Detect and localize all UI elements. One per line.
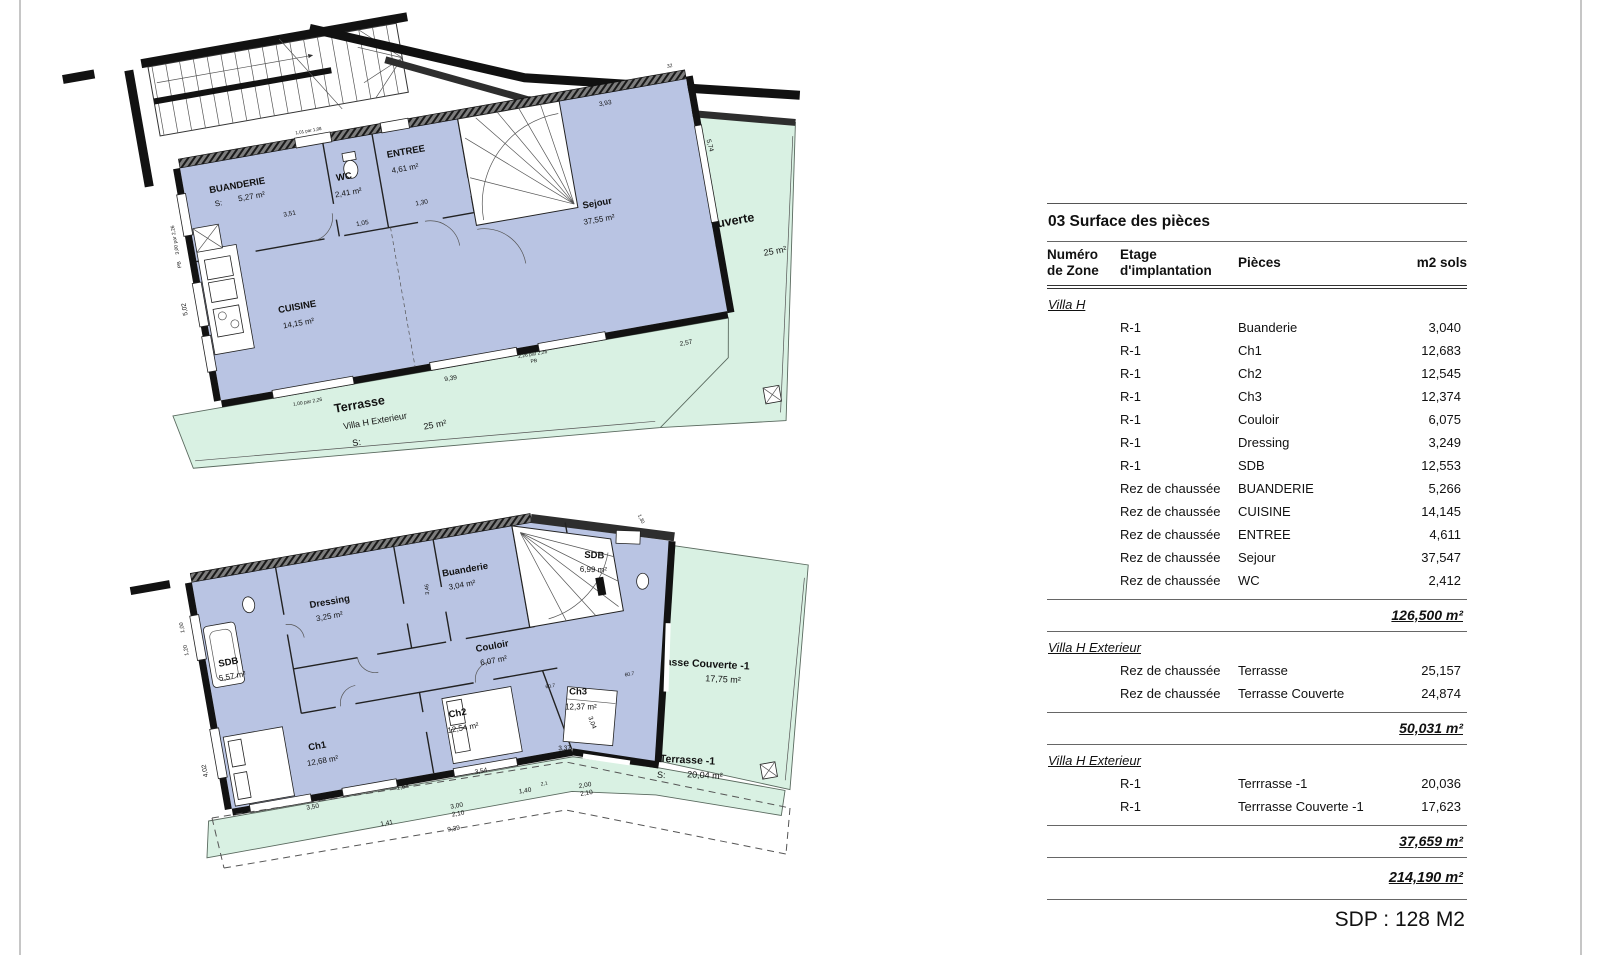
- table-row: Rez de chausséeSejour37,547: [1047, 546, 1467, 569]
- neighbor-wall: [124, 70, 153, 188]
- cell-numero: [1047, 500, 1120, 523]
- cell-numero: [1047, 659, 1120, 682]
- table-row: R-1Terrrasse -120,036: [1047, 772, 1467, 795]
- subtotal: 50,031 m²: [1047, 713, 1467, 744]
- cell-numero: [1047, 339, 1120, 362]
- cell-numero: [1047, 546, 1120, 569]
- table-row: R-1Terrrasse Couverte -117,623: [1047, 795, 1467, 818]
- cell-numero: [1047, 408, 1120, 431]
- floor-plans: Terrasse Couverte Villa H Exterieur S: 2…: [0, 0, 1010, 955]
- dimension-label: 1,20: [183, 644, 191, 656]
- dimension-label: 3,00 par 2,26: [170, 225, 181, 255]
- cell-numero: [1047, 385, 1120, 408]
- cell-m2: 5,266: [1368, 477, 1467, 500]
- cell-numero: [1047, 772, 1120, 795]
- cell-etage: R-1: [1120, 408, 1238, 431]
- table-row: R-1Ch212,545: [1047, 362, 1467, 385]
- cell-m2: 3,040: [1368, 316, 1467, 339]
- table-row: Rez de chausséeBUANDERIE5,266: [1047, 477, 1467, 500]
- cell-numero: [1047, 523, 1120, 546]
- floor-plan-rdc: Terrasse Couverte Villa H Exterieur S: 2…: [62, 0, 855, 534]
- drain-symbol: [763, 385, 782, 404]
- cell-numero: [1047, 316, 1120, 339]
- cell-numero: [1047, 795, 1120, 818]
- cell-m2: 4,611: [1368, 523, 1467, 546]
- cell-etage: R-1: [1120, 772, 1238, 795]
- table-header: Numérode Zone Etaged'implantation Pièces…: [1047, 242, 1467, 285]
- cell-etage: Rez de chaussée: [1120, 659, 1238, 682]
- dimension-label: 4,02: [201, 764, 210, 778]
- cell-piece: Sejour: [1238, 546, 1368, 569]
- cell-piece: Ch2: [1238, 362, 1368, 385]
- group-label: Villa H Exterieur: [1047, 745, 1467, 772]
- cell-piece: Terrrasse -1: [1238, 772, 1368, 795]
- cell-m2: 37,547: [1368, 546, 1467, 569]
- table-body: Villa HR-1Buanderie3,040R-1Ch112,683R-1C…: [1047, 289, 1467, 858]
- dimension-label: 1,41: [380, 819, 394, 828]
- cell-numero: [1047, 569, 1120, 592]
- header-numero-de-zone: Numérode Zone: [1047, 247, 1120, 279]
- table-row: Rez de chausséeCUISINE14,145: [1047, 500, 1467, 523]
- cell-etage: R-1: [1120, 454, 1238, 477]
- cell-piece: Terrrasse Couverte -1: [1238, 795, 1368, 818]
- table-row: Rez de chausséeTerrasse Couverte24,874: [1047, 682, 1467, 705]
- header-m2-sols: m2 sols: [1368, 255, 1467, 271]
- dimension-label: 3,46: [424, 584, 431, 595]
- surface-prefix: S:: [352, 437, 362, 448]
- drain-symbol: [760, 762, 777, 779]
- room-label-ch3: Ch3: [569, 686, 587, 697]
- cell-etage: Rez de chaussée: [1120, 546, 1238, 569]
- table-row: R-1SDB12,553: [1047, 454, 1467, 477]
- cell-etage: R-1: [1120, 362, 1238, 385]
- dimension-label: 1,00: [179, 622, 187, 634]
- terrace-r1-label: Terrasse -1: [660, 753, 716, 768]
- surface-table: 03 Surface des pièces Numérode Zone Etag…: [1047, 203, 1467, 932]
- cell-m2: 12,374: [1368, 385, 1467, 408]
- floor-plan-r1: Terrasse Couverte -1 S: 17,75 m² Terrass…: [129, 467, 850, 920]
- cell-m2: 14,145: [1368, 500, 1467, 523]
- cell-piece: Couloir: [1238, 408, 1368, 431]
- cell-numero: [1047, 454, 1120, 477]
- cell-numero: [1047, 682, 1120, 705]
- table-row: Rez de chausséeWC2,412: [1047, 569, 1467, 592]
- dimension-label: 2,10: [580, 789, 594, 798]
- cell-piece: ENTREE: [1238, 523, 1368, 546]
- cell-etage: R-1: [1120, 795, 1238, 818]
- cell-etage: R-1: [1120, 431, 1238, 454]
- room-label-sdb2: SDB: [584, 550, 605, 562]
- cell-piece: WC: [1238, 569, 1368, 592]
- dimension-label: 2,1: [540, 781, 548, 788]
- dimension-label: 32: [667, 63, 674, 70]
- cell-etage: Rez de chaussée: [1120, 523, 1238, 546]
- cell-m2: 2,412: [1368, 569, 1467, 592]
- cell-etage: Rez de chaussée: [1120, 569, 1238, 592]
- cell-m2: 12,683: [1368, 339, 1467, 362]
- cell-piece: Ch1: [1238, 339, 1368, 362]
- cell-m2: 25,157: [1368, 659, 1467, 682]
- table-row: Rez de chausséeTerrasse25,157: [1047, 659, 1467, 682]
- cell-etage: Rez de chaussée: [1120, 477, 1238, 500]
- table-row: Rez de chausséeENTREE4,611: [1047, 523, 1467, 546]
- cell-numero: [1047, 362, 1120, 385]
- terrace-couverte-r1-area: 17,75 m²: [705, 673, 741, 685]
- surface-prefix: S:: [657, 770, 666, 780]
- header-pieces: Pièces: [1238, 255, 1368, 271]
- room-area-ch3: 12,37 m²: [565, 702, 597, 711]
- terrace-r1-area: 20,04 m²: [687, 769, 723, 781]
- cell-etage: Rez de chaussée: [1120, 500, 1238, 523]
- cell-etage: R-1: [1120, 339, 1238, 362]
- dimension-label: 1,30: [636, 513, 646, 525]
- sdp-value: SDP : 128 M2: [1047, 900, 1467, 932]
- cell-m2: 20,036: [1368, 772, 1467, 795]
- neighbor-wall: [130, 580, 171, 595]
- dimension-label: PB: [176, 260, 183, 268]
- subtotal: 37,659 m²: [1047, 826, 1467, 857]
- drawing-sheet: Terrasse Couverte Villa H Exterieur S: 2…: [0, 0, 1600, 955]
- dimension-label: 2,10: [451, 809, 465, 818]
- cell-piece: Buanderie: [1238, 316, 1368, 339]
- dimension-label: 5,02: [180, 302, 189, 316]
- cell-m2: 3,249: [1368, 431, 1467, 454]
- header-etage: Etaged'implantation: [1120, 247, 1238, 279]
- sheet-border-right: [1580, 0, 1582, 955]
- cell-m2: 17,623: [1368, 795, 1467, 818]
- table-row: R-1Ch112,683: [1047, 339, 1467, 362]
- cell-m2: 12,553: [1368, 454, 1467, 477]
- cell-piece: SDB: [1238, 454, 1368, 477]
- cell-etage: Rez de chaussée: [1120, 682, 1238, 705]
- table-row: R-1Dressing3,249: [1047, 431, 1467, 454]
- cell-numero: [1047, 431, 1120, 454]
- cell-piece: Dressing: [1238, 431, 1368, 454]
- cell-piece: Ch3: [1238, 385, 1368, 408]
- surface-prefix: S:: [214, 198, 223, 208]
- table-row: R-1Buanderie3,040: [1047, 316, 1467, 339]
- cell-etage: R-1: [1120, 385, 1238, 408]
- cell-piece: Terrasse: [1238, 659, 1368, 682]
- cell-piece: BUANDERIE: [1238, 477, 1368, 500]
- dimension-label: 3,37: [558, 745, 571, 752]
- table-row: R-1Couloir6,075: [1047, 408, 1467, 431]
- winder-stair-rdc: [458, 101, 578, 225]
- cell-piece: CUISINE: [1238, 500, 1368, 523]
- group-label: Villa H Exterieur: [1047, 632, 1467, 659]
- grand-total: 214,190 m²: [1047, 858, 1467, 899]
- neighbor-wall: [62, 70, 95, 84]
- cell-m2: 24,874: [1368, 682, 1467, 705]
- cell-etage: R-1: [1120, 316, 1238, 339]
- cell-m2: 12,545: [1368, 362, 1467, 385]
- table-title: 03 Surface des pièces: [1047, 204, 1467, 241]
- cell-m2: 6,075: [1368, 408, 1467, 431]
- cell-piece: Terrasse Couverte: [1238, 682, 1368, 705]
- subtotal: 126,500 m²: [1047, 600, 1467, 631]
- cell-numero: [1047, 477, 1120, 500]
- table-row: R-1Ch312,374: [1047, 385, 1467, 408]
- group-label: Villa H: [1047, 289, 1467, 316]
- room-area-sdb2: 6,99 m²: [580, 565, 608, 575]
